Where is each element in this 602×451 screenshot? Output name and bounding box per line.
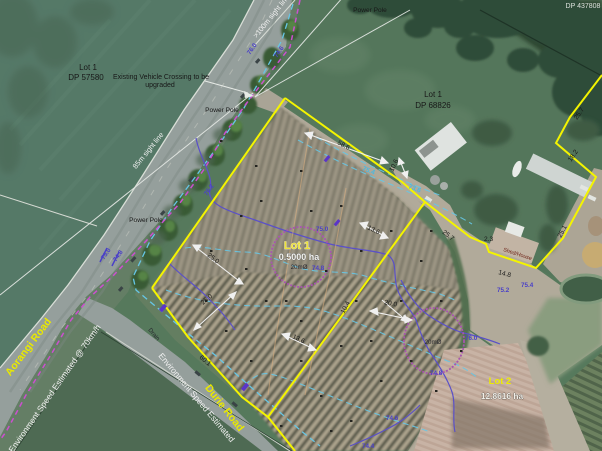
svg-text:74.8: 74.8: [312, 265, 325, 272]
svg-text:75.4: 75.4: [521, 282, 534, 289]
svg-text:upgraded: upgraded: [145, 82, 175, 89]
svg-text:75.0: 75.0: [316, 226, 329, 233]
svg-text:76.0: 76.0: [465, 335, 478, 342]
svg-text:Lot 1: Lot 1: [79, 63, 97, 72]
svg-text:DP 437808: DP 437808: [566, 3, 601, 10]
svg-text:DP 68826: DP 68826: [415, 101, 451, 110]
svg-text:0.5000 ha: 0.5000 ha: [279, 252, 321, 262]
svg-text:Power Pole: Power Pole: [353, 7, 387, 14]
svg-text:DP 57580: DP 57580: [68, 73, 104, 82]
svg-text:Lot 1: Lot 1: [284, 240, 310, 252]
svg-text:20mØ: 20mØ: [425, 339, 442, 346]
svg-text:74.8: 74.8: [430, 370, 443, 377]
svg-text:74.4: 74.4: [362, 443, 375, 450]
svg-text:74.6: 74.6: [386, 415, 399, 422]
svg-text:Lot 1: Lot 1: [424, 90, 442, 99]
svg-text:Existing Vehicle Crossing to b: Existing Vehicle Crossing to be: [113, 74, 209, 81]
svg-text:Power Pole: Power Pole: [205, 107, 239, 114]
svg-text:12.8616 ha: 12.8616 ha: [481, 391, 524, 401]
svg-text:20mØ: 20mØ: [291, 264, 308, 271]
svg-text:75.2: 75.2: [497, 287, 510, 294]
svg-text:Lot 2: Lot 2: [489, 376, 512, 387]
svg-text:2.3: 2.3: [484, 236, 493, 243]
svg-text:Power Pole: Power Pole: [129, 217, 163, 224]
